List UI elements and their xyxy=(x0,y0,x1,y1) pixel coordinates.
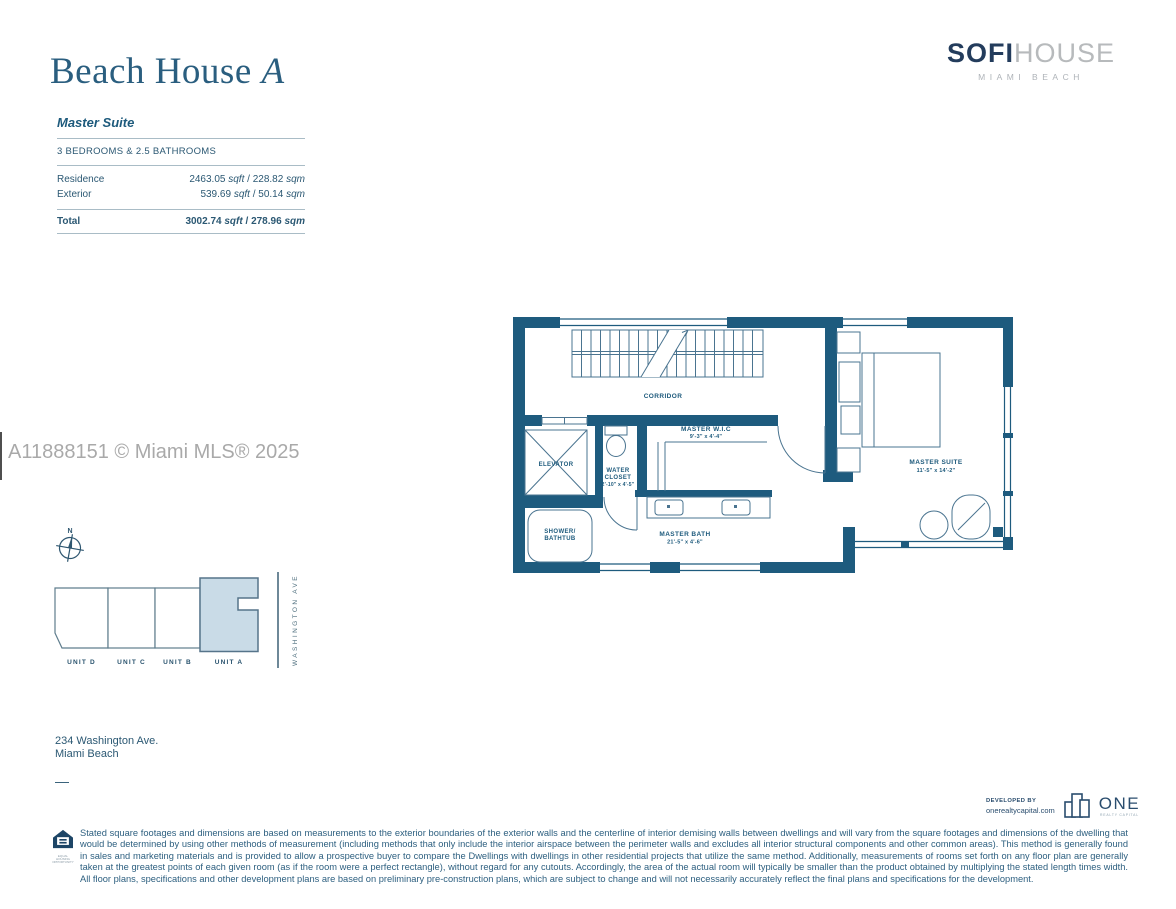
sitting-area xyxy=(920,495,1003,539)
address-line2: Miami Beach xyxy=(55,748,158,761)
unit-b-shape xyxy=(155,588,200,648)
bed-bath-config: 3 BEDROOMS & 2.5 BATHROOMS xyxy=(57,138,305,166)
room-label-shower-1: SHOWER/ xyxy=(544,529,575,535)
room-label-corridor: CORRIDOR xyxy=(644,393,683,400)
spec-rows: Residence 2463.05 sqft / 228.82 sqm Exte… xyxy=(57,166,305,209)
total-value: 3002.74 sqft / 278.96 sqm xyxy=(185,216,305,227)
row-label: Residence xyxy=(57,174,104,185)
street-label: WASHINGTON AVE xyxy=(292,574,299,666)
one-realty-wordmark: ONE REALTY CAPITAL xyxy=(1099,795,1140,817)
floor-plan-flyer: Beach House A Master Suite SOFIHOUSE MIA… xyxy=(0,0,1176,909)
room-label-master-bath: MASTER BATH xyxy=(659,531,710,538)
suite-door xyxy=(778,426,825,473)
unit-d-label: UNIT D xyxy=(67,659,96,666)
headboard-panel xyxy=(841,406,860,434)
brand-wordmark: SOFIHOUSE xyxy=(942,38,1120,69)
compass-icon: N xyxy=(54,528,86,564)
table-row: Exterior 539.69 sqft / 50.14 sqm xyxy=(57,187,305,202)
vanity-double-sink xyxy=(647,497,770,518)
headboard-panel xyxy=(839,362,860,402)
one-name: ONE xyxy=(1099,795,1140,812)
room-dims-master-suite: 11'-5" x 14'-2" xyxy=(917,468,956,474)
room-label-shower-2: BATHTUB xyxy=(544,536,576,542)
total-label: Total xyxy=(57,216,80,227)
svg-text:N: N xyxy=(67,528,72,535)
unit-a-shape-highlighted xyxy=(200,578,258,652)
spec-table: 3 BEDROOMS & 2.5 BATHROOMS Residence 246… xyxy=(57,138,305,234)
elevator xyxy=(525,418,587,496)
room-label-elevator: ELEVATOR xyxy=(539,462,574,468)
developer-block: DEVELOPED BY onerealtycapital.com ONE RE… xyxy=(986,790,1140,822)
property-address: 234 Washington Ave. Miami Beach xyxy=(55,735,158,761)
room-label-wc-1: WATER xyxy=(606,468,629,474)
room-label-wic: MASTER W.I.C xyxy=(681,426,731,433)
legal-disclaimer: Stated square footages and dimensions ar… xyxy=(80,828,1128,885)
page-title: Beach House A xyxy=(50,50,285,93)
water-closet-door xyxy=(604,497,637,530)
room-dims-master-bath: 21'-5" x 4'-6" xyxy=(667,540,703,546)
nightstand xyxy=(837,448,860,472)
page-title-variant: A xyxy=(262,51,285,92)
table-row: Residence 2463.05 sqft / 228.82 sqm xyxy=(57,172,305,187)
equal-housing-block: EQUAL HOUSING OPPORTUNITY xyxy=(51,829,75,865)
unit-c-label: UNIT C xyxy=(117,659,146,666)
developer-url[interactable]: onerealtycapital.com xyxy=(986,806,1055,815)
table-total-row: Total 3002.74 sqft / 278.96 sqm xyxy=(57,209,305,234)
wic-closet xyxy=(658,442,767,491)
floor-plan-drawing: CORRIDOR ELEVATOR WATER CLOSET 2'-10" x … xyxy=(510,315,1015,577)
row-value: 539.69 sqft / 50.14 sqm xyxy=(200,189,305,200)
toilet xyxy=(605,426,627,457)
one-realty-buildings-icon xyxy=(1062,790,1092,822)
brand-tagline: MIAMI BEACH xyxy=(942,72,1120,82)
one-tagline: REALTY CAPITAL xyxy=(1099,814,1140,817)
room-dims-wc: 2'-10" x 4'-5" xyxy=(602,482,635,488)
suite-name: Master Suite xyxy=(57,115,134,130)
round-table xyxy=(920,511,948,539)
equal-housing-icon xyxy=(52,829,74,849)
edge-artifact xyxy=(0,432,2,480)
nightstand xyxy=(837,332,860,353)
page-title-main: Beach House xyxy=(50,51,252,92)
address-divider: — xyxy=(55,773,69,789)
developed-by-label: DEVELOPED BY xyxy=(986,798,1055,804)
brand-house: HOUSE xyxy=(1014,38,1115,68)
staircase xyxy=(572,330,763,377)
room-label-master-suite: MASTER SUITE xyxy=(909,459,962,466)
developed-by: DEVELOPED BY onerealtycapital.com xyxy=(986,798,1055,815)
unit-b-label: UNIT B xyxy=(163,659,192,666)
row-label: Exterior xyxy=(57,189,91,200)
address-line1: 234 Washington Ave. xyxy=(55,735,158,748)
bed xyxy=(837,332,940,472)
room-label-wc-2: CLOSET xyxy=(605,475,632,481)
unit-a-label: UNIT A xyxy=(215,659,244,666)
brand-logo: SOFIHOUSE MIAMI BEACH xyxy=(942,38,1120,82)
mls-watermark: A11888151 © Miami MLS® 2025 xyxy=(8,441,299,464)
equal-housing-text: EQUAL HOUSING OPPORTUNITY xyxy=(51,855,75,865)
unit-d-shape xyxy=(55,588,108,648)
site-key-plan: N UNIT D UNIT C UNIT B UNIT A WASHINGTON… xyxy=(50,520,310,672)
room-dims-wic: 9'-3" x 4'-4" xyxy=(690,434,723,440)
brand-sofi: SOFI xyxy=(947,38,1014,68)
row-value: 2463.05 sqft / 228.82 sqm xyxy=(189,174,305,185)
unit-c-shape xyxy=(108,588,155,648)
